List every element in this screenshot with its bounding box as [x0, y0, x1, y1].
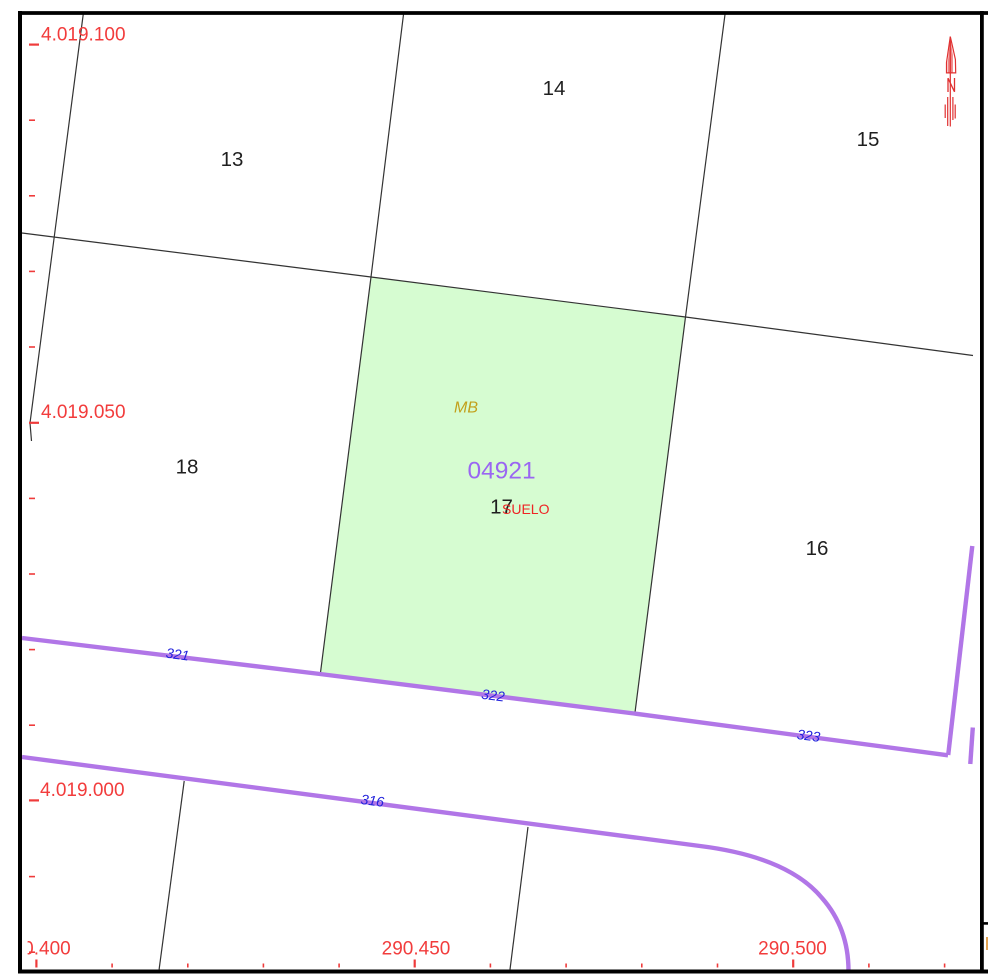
svg-text:290.500: 290.500 [758, 939, 827, 960]
svg-text:18: 18 [176, 455, 199, 478]
svg-text:04921: 04921 [468, 458, 536, 485]
svg-text:14: 14 [543, 77, 566, 100]
svg-text:SUELO: SUELO [502, 501, 550, 517]
svg-text:322: 322 [480, 686, 505, 705]
svg-text:4.019.000: 4.019.000 [40, 780, 125, 801]
svg-text:316: 316 [360, 791, 385, 810]
svg-text:15: 15 [857, 128, 880, 151]
svg-text:16: 16 [806, 537, 829, 560]
svg-text:13: 13 [221, 148, 244, 171]
svg-text:4.019.050: 4.019.050 [41, 402, 126, 423]
svg-text:4.019.100: 4.019.100 [41, 24, 126, 45]
svg-text:MB: MB [454, 400, 478, 417]
svg-text:323: 323 [796, 726, 821, 745]
svg-text:290.450: 290.450 [382, 939, 451, 960]
svg-text:321: 321 [165, 645, 190, 664]
